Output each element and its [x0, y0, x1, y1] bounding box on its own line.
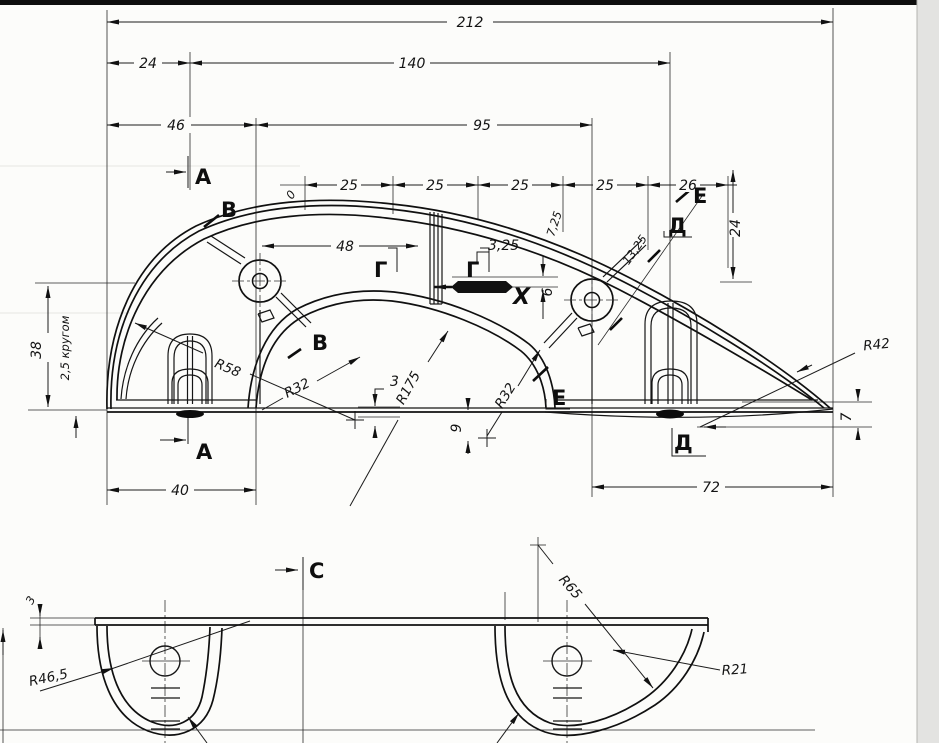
dim-40: 40 [171, 483, 189, 499]
dim-38: 38 [29, 341, 45, 359]
view-label-x: Х [511, 285, 531, 310]
scan-edge-strip [917, 0, 939, 743]
section-label-d-bottom: Д [674, 431, 693, 455]
radius-r65: R65 [555, 572, 585, 603]
dim-3: 3 [390, 374, 399, 390]
dim-pitch-1: 25 [340, 178, 358, 194]
dim-72: 72 [702, 480, 720, 496]
dim-13-25: 13,25 [620, 232, 650, 267]
dim-95: 95 [473, 118, 491, 134]
section-label-c: С [309, 559, 324, 583]
bottom-view-dims [3, 545, 720, 743]
dim-140: 140 [399, 56, 426, 72]
blueprint-canvas: 212 140 24 46 95 25 25 25 25 26 0 48 3,2… [0, 0, 939, 743]
slot-hole-right [656, 410, 684, 419]
dim-7-25: 7,25 [544, 209, 565, 238]
dim-24-vert: 24 [728, 219, 744, 237]
dim-plate-3: 3 [23, 594, 39, 607]
shell-outline [107, 200, 833, 412]
dim-7: 7 [839, 412, 855, 421]
radius-r32-right: R32 [492, 380, 520, 411]
section-label-e-bottom: Е [552, 386, 566, 410]
dim-212: 212 [457, 15, 484, 31]
dim-zero: 0 [283, 188, 299, 202]
dim-48: 48 [336, 239, 354, 255]
section-label-d-top: Д [668, 214, 687, 238]
radius-r46-5: R46,5 [28, 666, 70, 690]
section-label-a-bottom: А [196, 440, 213, 464]
dim-pitch-4: 25 [596, 178, 614, 194]
dim-9: 9 [449, 423, 465, 432]
shell-inner-detail [107, 212, 833, 417]
section-label-g-right: Г [466, 258, 479, 282]
dim-24: 24 [139, 56, 157, 72]
section-label-a-top: А [195, 165, 212, 189]
boss-right [564, 272, 620, 328]
labels: 212 140 24 46 95 25 25 25 25 26 0 48 3,2… [23, 14, 891, 690]
scan-top-bar [0, 0, 917, 5]
radius-r32-left: R32 [282, 375, 313, 401]
bottom-view-body [95, 618, 708, 735]
section-label-b-bottom: В [312, 331, 328, 355]
radius-r21: R21 [721, 661, 749, 679]
x-detail-lug [451, 281, 513, 293]
section-label-e-top: Е [693, 184, 707, 208]
dim-pitch-3: 25 [511, 178, 529, 194]
dim-pitch-2: 25 [426, 178, 444, 194]
section-label-b-top: В [221, 198, 237, 222]
dim-3-25: 3,25 [488, 238, 519, 254]
dim-46: 46 [167, 118, 185, 134]
slot-hole-left [176, 410, 204, 418]
dim-wall-2-5: 2,5 кругом [58, 315, 72, 380]
section-label-g-left: Г [374, 258, 387, 282]
radius-r42: R42 [863, 336, 891, 355]
dim-6: 6 [540, 287, 556, 296]
radius-r58: R58 [212, 356, 243, 381]
